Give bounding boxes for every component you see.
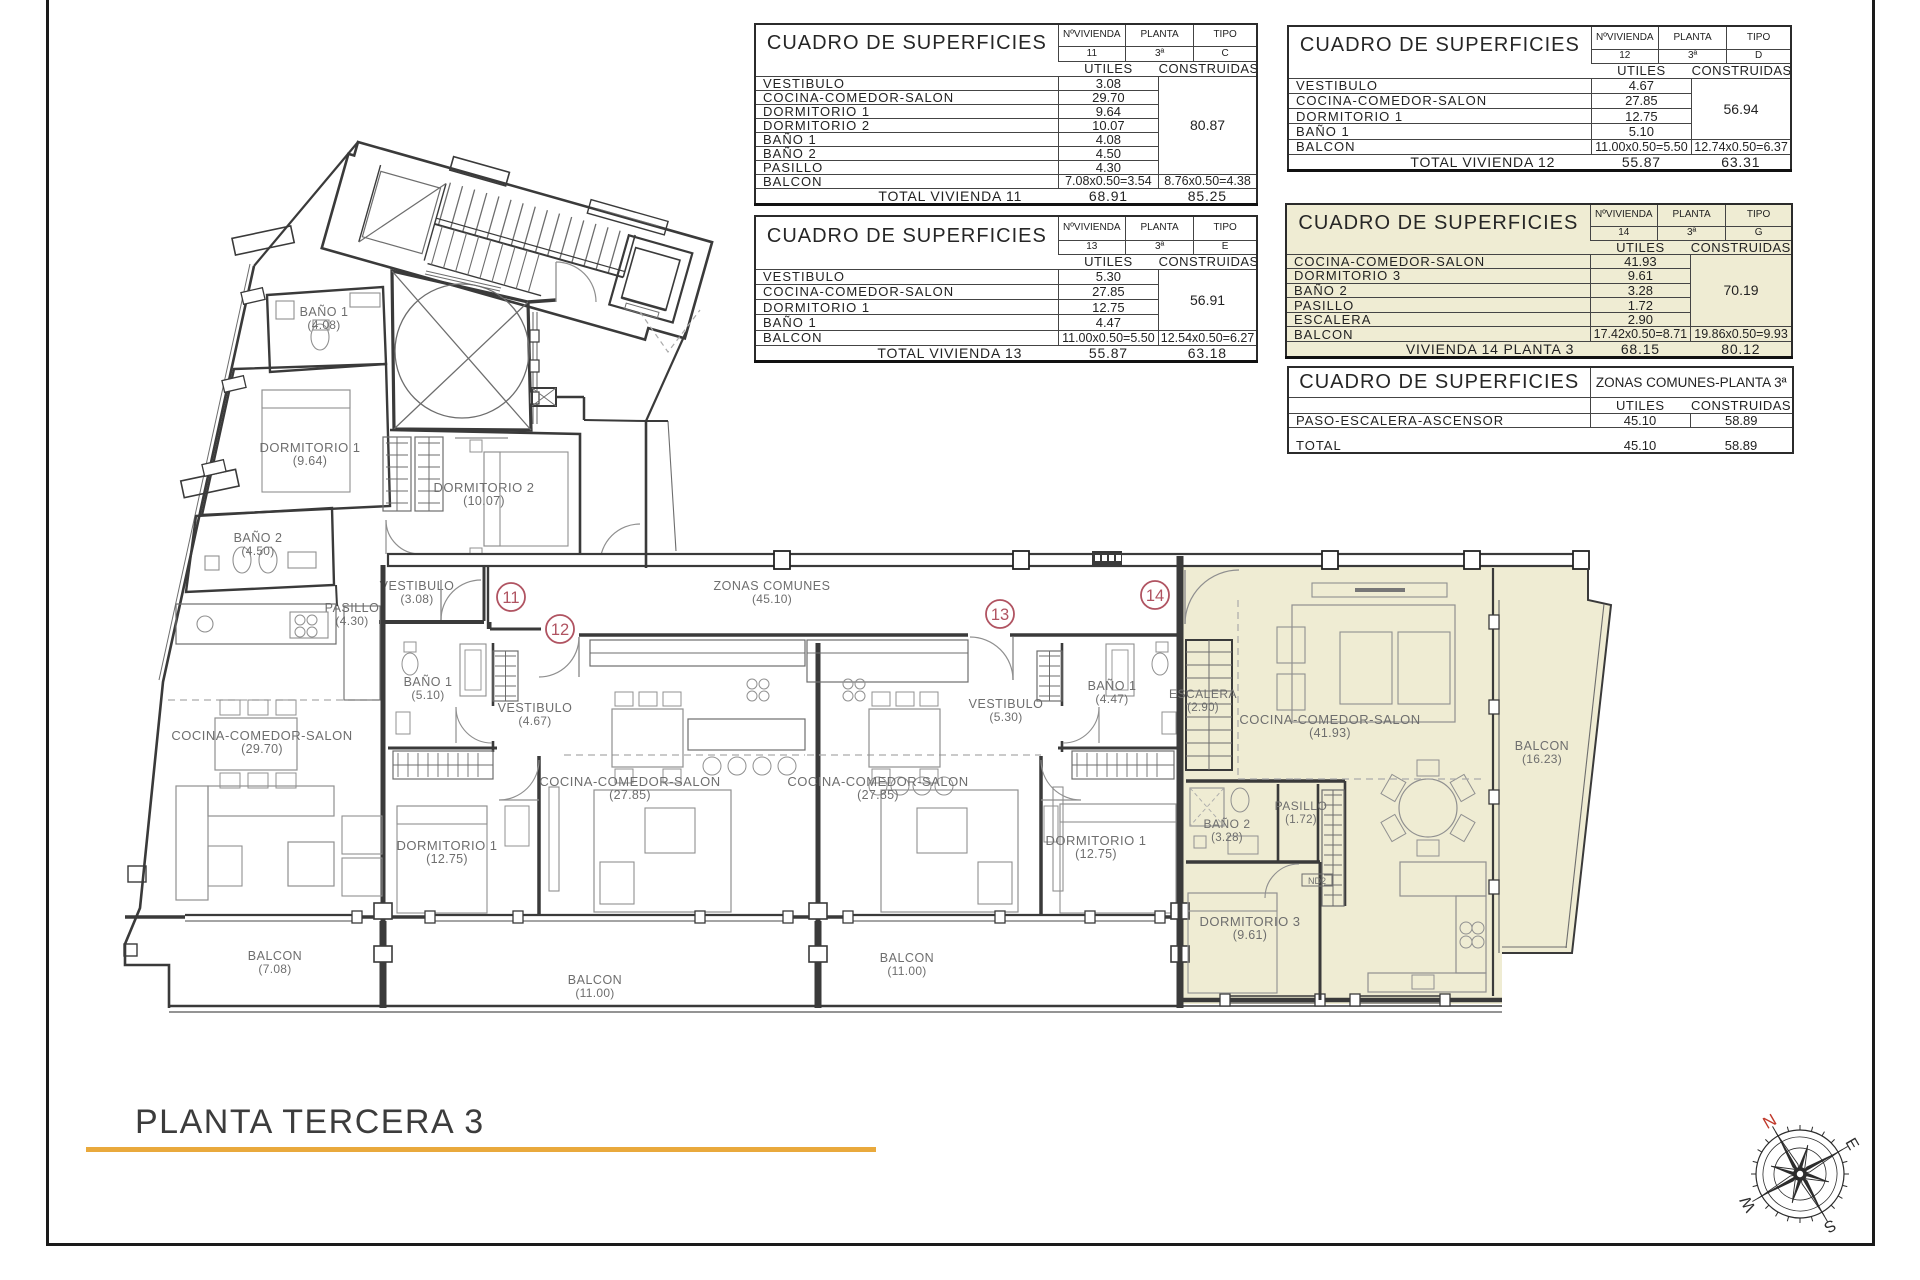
- svg-text:BAÑO 2: BAÑO 2: [234, 531, 283, 545]
- svg-text:BAÑO 1: BAÑO 1: [1088, 679, 1137, 693]
- svg-text:(4.08): (4.08): [307, 318, 340, 332]
- svg-text:(29.70): (29.70): [241, 742, 283, 756]
- svg-text:PASILLO: PASILLO: [1275, 799, 1328, 813]
- svg-text:(5.30): (5.30): [989, 710, 1022, 724]
- svg-text:(11.00): (11.00): [887, 964, 926, 978]
- svg-text:(4.30): (4.30): [335, 614, 368, 628]
- svg-text:DORMITORIO 1: DORMITORIO 1: [1045, 833, 1146, 848]
- svg-text:11: 11: [502, 589, 519, 607]
- svg-text:12: 12: [551, 621, 569, 639]
- svg-text:BALCON: BALCON: [1515, 739, 1569, 753]
- svg-text:W: W: [1737, 1192, 1760, 1214]
- svg-text:(16.23): (16.23): [1522, 752, 1562, 766]
- svg-text:(3.28): (3.28): [1211, 832, 1243, 844]
- svg-text:PASILLO: PASILLO: [325, 601, 380, 615]
- svg-text:BAÑO 2: BAÑO 2: [1203, 817, 1250, 831]
- svg-text:BALCON: BALCON: [568, 973, 622, 987]
- svg-text:VESTIBULO: VESTIBULO: [380, 579, 455, 593]
- svg-text:(2.90): (2.90): [1187, 702, 1219, 714]
- svg-text:(45.10): (45.10): [752, 592, 792, 606]
- svg-text:DORMITORIO 1: DORMITORIO 1: [396, 838, 497, 853]
- svg-text:BALCON: BALCON: [248, 949, 302, 963]
- svg-text:DORMITORIO 3: DORMITORIO 3: [1199, 914, 1300, 929]
- svg-text:14: 14: [1146, 587, 1164, 605]
- svg-text:E: E: [1842, 1135, 1862, 1153]
- svg-text:ND2: ND2: [1308, 876, 1326, 886]
- svg-text:(12.75): (12.75): [1075, 847, 1117, 861]
- svg-text:(10.07): (10.07): [463, 494, 505, 508]
- svg-text:(4.67): (4.67): [518, 714, 551, 728]
- svg-text:DORMITORIO 1: DORMITORIO 1: [259, 440, 360, 455]
- svg-text:(27.85): (27.85): [609, 788, 651, 802]
- svg-text:COCINA-COMEDOR-SALON: COCINA-COMEDOR-SALON: [171, 728, 352, 743]
- svg-text:(11.00): (11.00): [575, 986, 614, 1000]
- svg-text:DORMITORIO 2: DORMITORIO 2: [433, 480, 534, 495]
- svg-text:(3.08): (3.08): [400, 592, 433, 606]
- svg-text:BAÑO 1: BAÑO 1: [300, 305, 349, 319]
- svg-text:(9.64): (9.64): [293, 454, 327, 468]
- svg-text:ZONAS COMUNES: ZONAS COMUNES: [714, 579, 831, 593]
- svg-text:(12.75): (12.75): [426, 852, 468, 866]
- svg-text:(41.93): (41.93): [1309, 726, 1351, 740]
- svg-text:BALCON: BALCON: [880, 951, 934, 965]
- svg-text:BAÑO 1: BAÑO 1: [404, 675, 453, 689]
- svg-text:(1.72): (1.72): [1285, 814, 1317, 826]
- svg-text:(9.61): (9.61): [1233, 928, 1267, 942]
- svg-text:(5.10): (5.10): [411, 688, 444, 702]
- svg-text:13: 13: [991, 606, 1009, 624]
- svg-text:(4.47): (4.47): [1095, 692, 1128, 706]
- svg-text:COCINA-COMEDOR-SALON: COCINA-COMEDOR-SALON: [539, 774, 720, 789]
- svg-text:COCINA-COMEDOR-SALON: COCINA-COMEDOR-SALON: [787, 774, 968, 789]
- svg-text:(4.50): (4.50): [241, 544, 274, 558]
- svg-text:S: S: [1821, 1216, 1839, 1236]
- svg-text:(7.08): (7.08): [258, 962, 291, 976]
- svg-text:N: N: [1760, 1110, 1780, 1133]
- svg-text:(27.85): (27.85): [857, 788, 899, 802]
- svg-text:VESTIBULO: VESTIBULO: [498, 701, 573, 715]
- svg-text:VESTIBULO: VESTIBULO: [969, 697, 1044, 711]
- svg-text:COCINA-COMEDOR-SALON: COCINA-COMEDOR-SALON: [1239, 712, 1420, 727]
- svg-text:ESCALERA: ESCALERA: [1169, 687, 1237, 701]
